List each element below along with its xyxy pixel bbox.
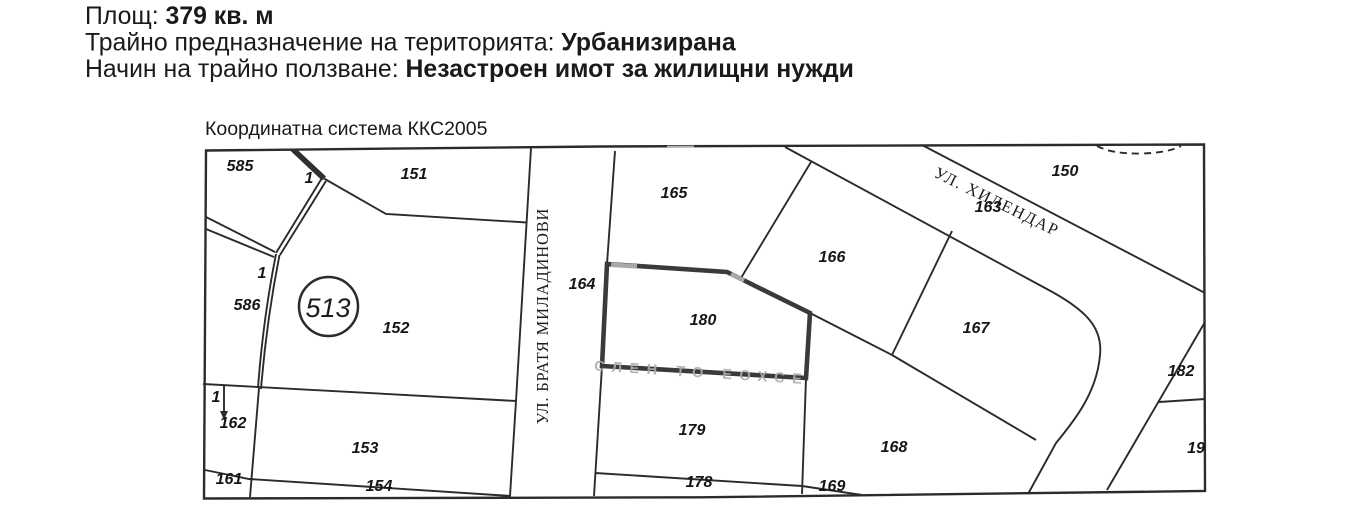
svg-text:179: 179	[679, 422, 706, 439]
svg-text:Начин на трайно ползване: Неза: Начин на трайно ползване: Незастроен имо…	[85, 56, 854, 83]
svg-text:УЛ. БРАТЯ МИЛАДИНОВИ: УЛ. БРАТЯ МИЛАДИНОВИ	[533, 208, 552, 424]
svg-text:166: 166	[819, 249, 846, 266]
svg-text:162: 162	[220, 415, 247, 432]
svg-text:165: 165	[661, 185, 689, 202]
svg-text:Координатна система ККС2005: Координатна система ККС2005	[205, 118, 488, 140]
svg-text:168: 168	[881, 439, 908, 456]
svg-text:Площ: 379 кв. м: Площ: 379 кв. м	[85, 3, 274, 30]
svg-text:585: 585	[227, 158, 255, 175]
svg-text:180: 180	[690, 312, 717, 329]
svg-text:150: 150	[1052, 163, 1079, 180]
svg-text:169: 169	[819, 478, 846, 495]
svg-text:1: 1	[212, 389, 221, 406]
svg-text:161: 161	[216, 471, 243, 488]
svg-text:152: 152	[383, 320, 410, 337]
svg-text:178: 178	[686, 474, 713, 491]
svg-text:Трайно предназначение на терит: Трайно предназначение на територията: Ур…	[85, 30, 736, 57]
svg-text:154: 154	[366, 478, 393, 495]
svg-text:513: 513	[305, 293, 350, 323]
svg-text:167: 167	[963, 320, 991, 337]
svg-text:586: 586	[234, 297, 261, 314]
svg-text:151: 151	[401, 166, 428, 183]
svg-text:1: 1	[305, 170, 314, 187]
svg-text:1: 1	[258, 265, 267, 282]
svg-text:182: 182	[1168, 363, 1195, 380]
svg-text:153: 153	[352, 440, 379, 457]
svg-text:164: 164	[569, 276, 596, 293]
svg-text:19: 19	[1187, 440, 1205, 457]
